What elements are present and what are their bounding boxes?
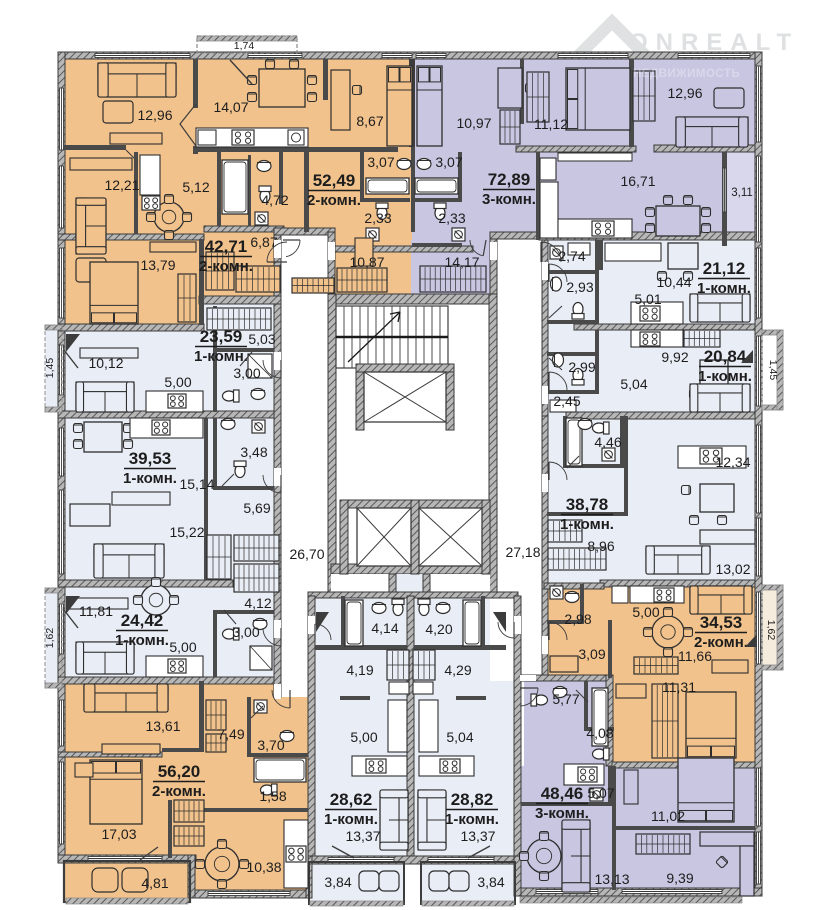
svg-text:23,59: 23,59 — [200, 327, 243, 346]
svg-text:13,02: 13,02 — [715, 561, 750, 577]
svg-text:4,08: 4,08 — [586, 725, 613, 741]
svg-text:13,13: 13,13 — [594, 871, 629, 887]
svg-text:28,62: 28,62 — [330, 790, 373, 809]
svg-text:5,00: 5,00 — [169, 639, 196, 655]
svg-text:39,53: 39,53 — [129, 449, 172, 468]
svg-text:2,33: 2,33 — [438, 210, 465, 226]
svg-text:21,12: 21,12 — [703, 259, 746, 278]
svg-text:2,98: 2,98 — [564, 611, 591, 627]
svg-text:15,22: 15,22 — [169, 524, 204, 540]
svg-text:12,21: 12,21 — [104, 177, 139, 193]
svg-text:4,46: 4,46 — [594, 434, 621, 450]
svg-text:15,14: 15,14 — [179, 476, 214, 492]
svg-text:4,19: 4,19 — [346, 662, 373, 678]
svg-text:3,00: 3,00 — [233, 365, 260, 381]
svg-text:14,07: 14,07 — [213, 99, 248, 115]
svg-text:10,38: 10,38 — [246, 859, 281, 875]
svg-text:5,00: 5,00 — [350, 729, 377, 745]
svg-text:1,62: 1,62 — [44, 628, 56, 649]
svg-text:3,84: 3,84 — [477, 874, 504, 890]
svg-text:56,20: 56,20 — [158, 762, 201, 781]
svg-text:2,99: 2,99 — [568, 359, 595, 375]
svg-text:12,96: 12,96 — [137, 107, 172, 123]
svg-text:3,48: 3,48 — [240, 444, 267, 460]
svg-text:10,12: 10,12 — [88, 355, 123, 371]
svg-text:5,03: 5,03 — [248, 331, 275, 347]
svg-text:2,93: 2,93 — [566, 279, 593, 295]
svg-text:3-комн.: 3-комн. — [535, 805, 589, 822]
svg-text:2,33: 2,33 — [364, 210, 391, 226]
svg-text:1-комн.: 1-комн. — [697, 280, 751, 297]
svg-text:1-комн.: 1-комн. — [115, 632, 169, 649]
svg-text:1-комн.: 1-комн. — [698, 368, 752, 385]
svg-text:38,78: 38,78 — [566, 495, 609, 514]
svg-text:4,14: 4,14 — [371, 620, 398, 636]
svg-text:4,20: 4,20 — [425, 621, 452, 637]
svg-text:13,79: 13,79 — [140, 257, 175, 273]
svg-text:4,29: 4,29 — [444, 662, 471, 678]
svg-text:1,74: 1,74 — [234, 40, 255, 52]
svg-text:13,37: 13,37 — [345, 828, 380, 844]
svg-text:1,45: 1,45 — [767, 360, 779, 381]
svg-text:3,84: 3,84 — [324, 874, 351, 890]
svg-text:5,00: 5,00 — [164, 374, 191, 390]
svg-text:9,39: 9,39 — [666, 870, 693, 886]
svg-text:1-комн.: 1-комн. — [324, 811, 378, 828]
svg-text:24,42: 24,42 — [121, 611, 164, 630]
svg-text:2-комн.: 2-комн. — [199, 258, 253, 275]
svg-text:5,07: 5,07 — [587, 785, 614, 801]
svg-text:13,61: 13,61 — [145, 718, 180, 734]
svg-text:5,12: 5,12 — [182, 179, 209, 195]
svg-text:27,18: 27,18 — [505, 544, 540, 560]
svg-text:4,72: 4,72 — [261, 192, 288, 208]
svg-text:3,07: 3,07 — [367, 154, 394, 170]
svg-text:42,71: 42,71 — [205, 237, 248, 256]
svg-text:2-комн.: 2-комн. — [307, 192, 361, 209]
svg-text:12,96: 12,96 — [667, 85, 702, 101]
svg-text:5,04: 5,04 — [620, 376, 647, 392]
svg-text:5,00: 5,00 — [632, 604, 659, 620]
svg-text:12,34: 12,34 — [715, 454, 750, 470]
svg-text:34,53: 34,53 — [700, 613, 743, 632]
svg-text:72,89: 72,89 — [488, 170, 531, 189]
svg-text:2-комн.: 2-комн. — [152, 783, 206, 800]
svg-text:5,77: 5,77 — [552, 691, 579, 707]
svg-text:48,46: 48,46 — [541, 784, 584, 803]
svg-text:3-комн.: 3-комн. — [482, 191, 536, 208]
svg-text:3,11: 3,11 — [731, 187, 753, 199]
svg-text:3,07: 3,07 — [435, 154, 462, 170]
svg-text:16,71: 16,71 — [620, 173, 655, 189]
svg-text:1-комн.: 1-комн. — [560, 516, 614, 533]
svg-text:4,12: 4,12 — [244, 595, 271, 611]
svg-text:9,92: 9,92 — [661, 349, 688, 365]
svg-text:20,84: 20,84 — [704, 347, 747, 366]
svg-text:17,03: 17,03 — [101, 826, 136, 842]
svg-text:3,09: 3,09 — [578, 646, 605, 662]
svg-text:26,70: 26,70 — [289, 546, 324, 562]
svg-text:2,45: 2,45 — [553, 393, 580, 409]
svg-text:11,12: 11,12 — [534, 116, 568, 132]
svg-text:11,81: 11,81 — [79, 603, 113, 619]
svg-text:5,04: 5,04 — [446, 729, 473, 745]
svg-text:5,01: 5,01 — [634, 291, 661, 307]
svg-text:10,44: 10,44 — [656, 274, 691, 290]
svg-text:2,74: 2,74 — [558, 248, 585, 264]
svg-text:8,96: 8,96 — [587, 538, 614, 554]
svg-text:28,82: 28,82 — [451, 790, 494, 809]
svg-text:1-комн.: 1-комн. — [445, 811, 499, 828]
svg-text:11,31: 11,31 — [662, 679, 696, 695]
svg-text:14,17: 14,17 — [444, 254, 479, 270]
svg-text:1,45: 1,45 — [44, 358, 56, 379]
svg-text:1-комн.: 1-комн. — [194, 348, 248, 365]
svg-text:1-комн.: 1-комн. — [123, 470, 177, 487]
svg-text:13,37: 13,37 — [460, 828, 495, 844]
svg-text:11,02: 11,02 — [651, 808, 685, 824]
svg-text:7,49: 7,49 — [217, 726, 244, 742]
svg-text:8,67: 8,67 — [356, 113, 383, 129]
svg-text:1,58: 1,58 — [259, 788, 286, 804]
svg-text:5,69: 5,69 — [243, 500, 270, 516]
svg-text:10,97: 10,97 — [456, 115, 491, 131]
svg-text:10,87: 10,87 — [349, 254, 384, 270]
svg-text:4,81: 4,81 — [141, 875, 168, 891]
svg-text:3,70: 3,70 — [257, 737, 284, 753]
svg-text:3,00: 3,00 — [232, 624, 259, 640]
svg-text:НЕДВИЖИМОСТЬ: НЕДВИЖИМОСТЬ — [633, 68, 740, 80]
svg-text:1,62: 1,62 — [765, 620, 777, 641]
svg-text:11,66: 11,66 — [678, 648, 712, 664]
svg-text:52,49: 52,49 — [313, 171, 356, 190]
